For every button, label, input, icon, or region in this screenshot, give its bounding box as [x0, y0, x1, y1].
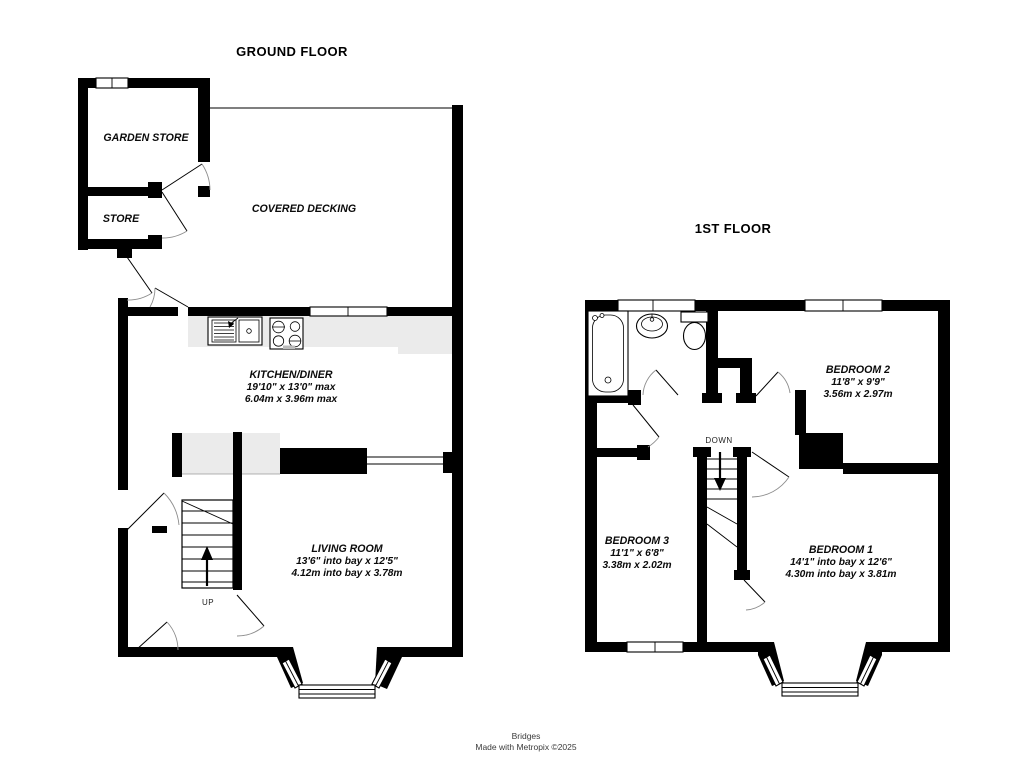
bathroom-window [618, 300, 695, 311]
garden-store-label: GARDEN STORE [103, 132, 189, 144]
store-door [162, 192, 187, 238]
bedroom2-window [805, 300, 882, 311]
understairs-cupboard [178, 433, 280, 474]
stairs-down [707, 452, 737, 547]
bedroom1-bay-window [758, 642, 882, 696]
bedroom2-label: BEDROOM 2 [826, 364, 890, 376]
room-opening-lines [367, 457, 443, 464]
kitchen-window [310, 307, 387, 316]
wall [118, 528, 128, 657]
stairs-up-label: UP [202, 598, 214, 607]
wall [188, 307, 310, 316]
living-room-dims-imperial: 13'6" into bay x 12'5" [296, 556, 398, 567]
wall [172, 433, 182, 477]
wall [683, 642, 758, 652]
wall [78, 239, 154, 249]
ground-walls [78, 78, 463, 657]
wall [585, 448, 640, 457]
stairs-up [182, 500, 233, 588]
first-floor-title: 1ST FLOOR [695, 221, 772, 236]
chimney-breast [799, 433, 843, 469]
bathtub-icon [588, 311, 628, 396]
stair-cupboard-door [744, 580, 765, 610]
bedroom1-dims-imperial: 14'1" into bay x 12'6" [790, 557, 892, 568]
kitchen-dims-metric: 6.04m x 3.96m max [245, 394, 339, 405]
bedroom2-dims-imperial: 11'8" x 9'9" [831, 377, 885, 388]
bedroom1-dims-metric: 4.30m into bay x 3.81m [785, 569, 897, 580]
wall [148, 182, 162, 198]
footer-credit: Made with Metropix ©2025 [475, 742, 577, 752]
floorplan-page: GROUND FLOOR GARDEN STORE STORE COVERED … [0, 0, 1024, 783]
wall [702, 393, 722, 403]
wall [152, 526, 167, 533]
first-floor-plan: 1ST FLOOR BEDROOM 2 11'8" x 9'9" 3.56m x… [585, 221, 950, 696]
wall [118, 298, 128, 490]
chimney-breast [280, 448, 367, 474]
wall [733, 447, 751, 457]
wall [443, 452, 453, 473]
wall [198, 186, 210, 197]
wall [402, 647, 463, 657]
wall [585, 642, 627, 652]
stair-wall [737, 450, 747, 578]
living-room-side-door [127, 493, 179, 530]
ground-windows [96, 78, 387, 316]
wall [734, 570, 750, 580]
wall [693, 447, 711, 457]
wall [117, 248, 132, 258]
ground-floor-plan: GROUND FLOOR GARDEN STORE STORE COVERED … [78, 44, 463, 698]
wall [795, 390, 806, 435]
wall [718, 358, 742, 368]
wall [198, 78, 210, 162]
wall [128, 307, 178, 316]
stair-winder [707, 507, 737, 547]
bedroom3-dims-imperial: 11'1" x 6'8" [610, 548, 664, 559]
ground-floor-title: GROUND FLOOR [236, 44, 348, 59]
wall [78, 78, 88, 250]
bedroom3-door [633, 405, 659, 447]
first-floor-walls [585, 300, 950, 652]
wall [843, 463, 938, 474]
living-room-bay-window [277, 647, 402, 698]
stairs-down-label: DOWN [705, 436, 732, 445]
bedroom2-dims-metric: 3.56m x 2.97m [823, 389, 892, 400]
kitchen-label: KITCHEN/DINER [250, 369, 333, 381]
wall [452, 105, 463, 657]
bedroom3-dims-metric: 3.38m x 2.02m [602, 560, 671, 571]
stair-wall [697, 450, 707, 642]
living-room-stair-door [237, 595, 264, 636]
footer: Bridges Made with Metropix ©2025 [475, 731, 577, 752]
toilet-icon [681, 312, 708, 350]
bedroom3-label: BEDROOM 3 [605, 535, 669, 547]
first-floor-windows [618, 300, 882, 652]
bedroom1-label: BEDROOM 1 [809, 544, 873, 556]
wall [938, 300, 950, 652]
wall [128, 78, 210, 88]
hob-icon [270, 318, 303, 349]
wall [118, 647, 277, 657]
basin-icon [637, 314, 668, 339]
wall [736, 393, 756, 403]
living-room-label: LIVING ROOM [311, 543, 383, 555]
bathroom-door [643, 370, 678, 395]
wall [78, 187, 154, 196]
hall-door-b [150, 288, 188, 307]
wall [148, 235, 162, 249]
bedroom2-door [756, 372, 790, 396]
bay-window-pane [782, 683, 858, 696]
bedroom1-door [752, 452, 789, 497]
front-door [136, 622, 178, 650]
footer-brand: Bridges [512, 731, 541, 741]
counter-corner [398, 316, 452, 354]
hob-panel [283, 346, 295, 350]
bay-window-pane [299, 685, 375, 698]
floorplan-drawing: GROUND FLOOR GARDEN STORE STORE COVERED … [0, 0, 1024, 783]
hall-door-a [127, 257, 152, 300]
wall [387, 307, 453, 316]
living-room-dims-metric: 4.12m into bay x 3.78m [291, 568, 403, 579]
covered-decking-label: COVERED DECKING [252, 203, 356, 215]
first-floor-doors [633, 370, 790, 610]
stair-wall [233, 432, 242, 590]
wall [882, 642, 950, 652]
wall [628, 390, 641, 405]
kitchen-dims-imperial: 19'10" x 13'0" max [247, 382, 337, 393]
sink-icon [208, 317, 262, 345]
store-label: STORE [103, 213, 140, 225]
wall [637, 445, 650, 460]
